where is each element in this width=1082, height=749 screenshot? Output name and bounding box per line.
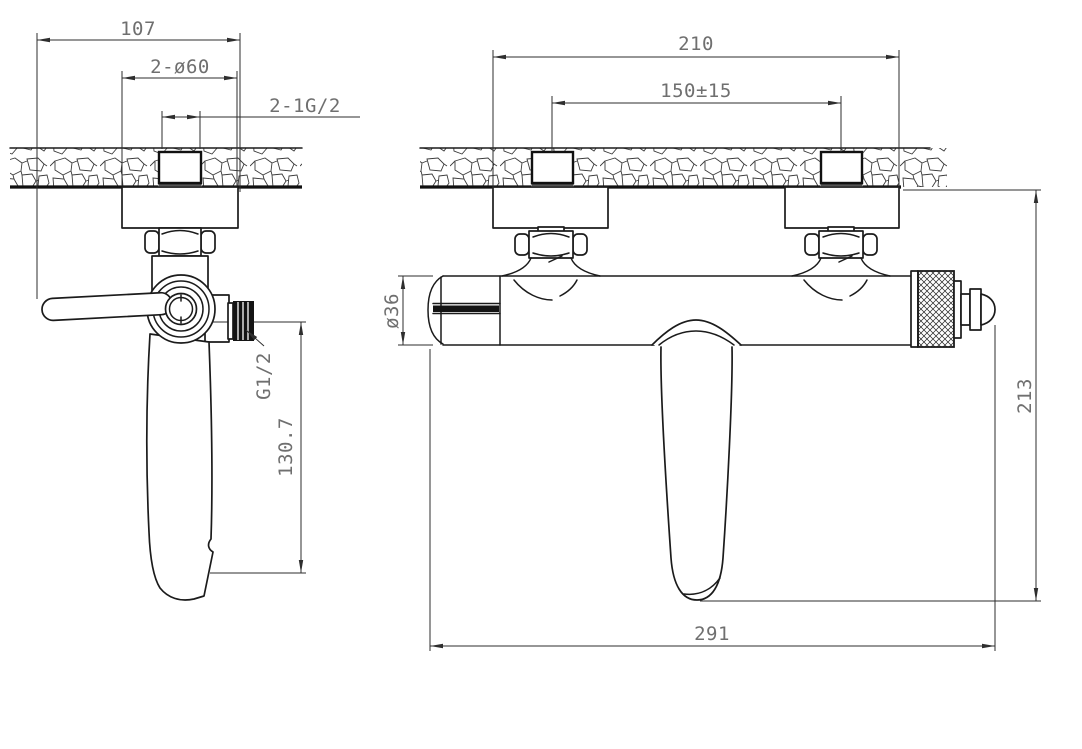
escutcheon-right	[785, 187, 899, 228]
escutcheon-side	[122, 187, 238, 228]
dim-inlet-thread-label: 2-1G/2	[269, 95, 341, 117]
wall-section-side	[10, 148, 302, 187]
dim-body-diameter-label: ø36	[381, 293, 403, 329]
side-view: 107 2-ø60 2-1G/2 G1/2 130.7	[10, 18, 360, 600]
mounting-block	[159, 152, 201, 183]
knurled-knob	[918, 271, 954, 347]
wall-section-front	[420, 148, 947, 187]
dim-height-label: 213	[1014, 378, 1036, 414]
dim-centers-label: 150±15	[660, 80, 732, 102]
drawing-canvas: 107 2-ø60 2-1G/2 G1/2 130.7	[0, 0, 1082, 749]
cartridge-slot	[433, 306, 499, 313]
outlet-cap	[981, 294, 995, 325]
dim-span-label: 210	[678, 33, 714, 55]
dim-centers: 150±15	[552, 80, 841, 152]
diverter-knob	[911, 271, 995, 347]
spout-side	[147, 334, 213, 600]
dim-inlet-thread: 2-1G/2	[162, 95, 360, 149]
front-view: 210 150±15 ø36 213 291	[381, 33, 1041, 651]
mounting-nut-right	[792, 227, 890, 300]
mounting-nut-side	[145, 228, 215, 256]
valve-hub-center	[166, 294, 197, 325]
mounting-nut-left	[502, 227, 600, 300]
dim-escutcheon-label: 2-ø60	[150, 56, 210, 78]
spout-front	[652, 320, 741, 600]
mounting-block-right	[821, 152, 862, 183]
label-outlet-thread-text: G1/2	[253, 352, 275, 400]
dim-depth-label: 107	[120, 18, 156, 40]
escutcheon-left	[493, 187, 608, 228]
faucet-installation-drawing: 107 2-ø60 2-1G/2 G1/2 130.7	[0, 0, 1082, 749]
outlet-nipple	[228, 301, 254, 341]
dim-spout-drop-label: 130.7	[275, 417, 297, 477]
mounting-block-left	[532, 152, 573, 183]
dim-length-label: 291	[694, 623, 730, 645]
dim-body-diameter: ø36	[381, 276, 433, 345]
